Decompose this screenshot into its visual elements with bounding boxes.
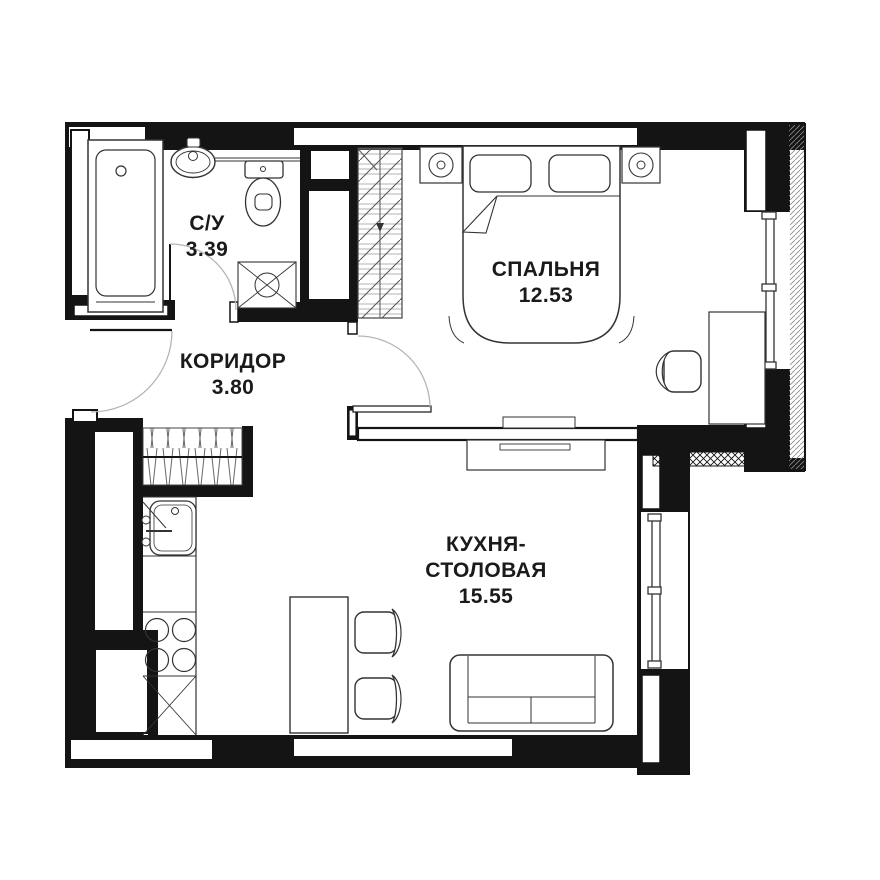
dining-table [290, 597, 348, 733]
room-name: КОРИДОР [180, 349, 286, 375]
wall-divider-thin [358, 428, 638, 440]
sofa [450, 655, 613, 731]
hall-closet [143, 428, 242, 485]
floor-plan-drawing [0, 0, 880, 880]
room-label-bedroom: СПАЛЬНЯ 12.53 [492, 257, 601, 309]
tv-console [467, 440, 605, 470]
room-name: СПАЛЬНЯ [492, 257, 601, 283]
room-area: 15.55 [425, 584, 546, 610]
room-label-kitchen: КУХНЯ- СТОЛОВАЯ 15.55 [425, 532, 546, 610]
bedroom-wardrobe [358, 148, 402, 318]
pillow-right [549, 155, 610, 192]
exterior-edge-strip [788, 124, 805, 470]
entrance-door-arc [91, 331, 172, 412]
room-label-bathroom: С/У 3.39 [186, 211, 228, 263]
kitchen-sink [142, 501, 196, 555]
faucet-icon [142, 516, 150, 524]
bedroom-door-arc [358, 336, 430, 408]
desk [709, 312, 765, 424]
bedroom-door-leaf [353, 406, 431, 412]
wall-closet-bottom [133, 485, 253, 497]
shower-tray [238, 262, 296, 308]
room-name: СТОЛОВАЯ [425, 558, 546, 584]
floor-plan: С/У 3.39 КОРИДОР 3.80 СПАЛЬНЯ 12.53 КУХН… [0, 0, 880, 880]
pillow-left [470, 155, 531, 192]
dining-chair-2 [355, 678, 397, 719]
sink-tap-icon [187, 138, 200, 147]
tv-shelf [503, 417, 575, 428]
dining-chair-1 [355, 612, 397, 653]
window-kitchen [641, 512, 688, 669]
dining-set [290, 597, 401, 733]
wall-edge-column [148, 649, 158, 735]
room-area: 3.39 [186, 237, 228, 263]
bathtub-drain [116, 166, 126, 176]
room-area: 3.80 [180, 375, 286, 401]
desk-chair [664, 351, 701, 392]
room-area: 12.53 [492, 283, 601, 309]
room-name: С/У [186, 211, 228, 237]
room-label-corridor: КОРИДОР 3.80 [180, 349, 286, 401]
room-name: КУХНЯ- [425, 532, 546, 558]
